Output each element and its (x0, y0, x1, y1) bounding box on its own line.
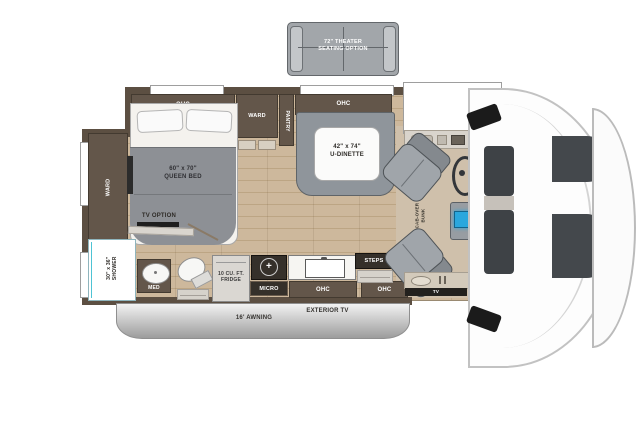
ohc-entry-label: OHC (362, 287, 407, 295)
wardrobe-top-label: WARD (237, 113, 277, 120)
ohc-dinette-label: OHC (296, 101, 391, 109)
tv-option-label: TV OPTION (130, 213, 188, 221)
dash-vent (451, 135, 465, 145)
fridge-label: 10 CU. FT. FRIDGE (213, 271, 249, 284)
kitchen-sink (305, 259, 345, 278)
bed-pillow (185, 109, 232, 133)
microwave: MICRO (250, 281, 288, 296)
windshield-upper (484, 146, 514, 196)
cab-tv-label: TV (405, 289, 467, 295)
wardrobe-left-label: WARD (106, 163, 113, 211)
med-cabinet-label: MED (138, 285, 170, 291)
cab-over-bunk-label: CAB-OVER BUNK (414, 194, 425, 238)
windshield-lower (484, 210, 514, 274)
wardrobe-tv-strip (127, 156, 133, 194)
sofa-armrest-right (383, 26, 396, 72)
cabinet-vent (439, 276, 441, 284)
queen-bed-label: 60" x 70" QUEEN BED (130, 166, 236, 181)
entry-step-tread (357, 270, 393, 283)
dinette-table: 42" x 74" U-DINETTE (314, 127, 380, 181)
theater-seating-sofa: 72" THEATER SEATING OPTION (287, 22, 399, 76)
front-bumper (592, 108, 636, 348)
bath-sink (142, 263, 170, 284)
refrigerator: 10 CU. FT. FRIDGE (212, 255, 250, 302)
ohc-kitchen-cabinet: OHC (289, 281, 357, 298)
stove: + (251, 255, 287, 280)
bed-pillow (136, 109, 183, 133)
cabinet-handle (411, 276, 431, 286)
pantry-label: PANTRY (284, 96, 290, 146)
bath-vanity-cabinet: MED (137, 259, 171, 293)
exterior-tv-label: EXTERIOR TV (275, 308, 380, 316)
dash-vent (437, 135, 447, 145)
wardrobe-top-cabinet: WARD (236, 94, 278, 138)
cab-tv-bar: TV (405, 288, 467, 296)
ohc-entry-cabinet: OHC (361, 281, 408, 298)
cab-roof-strip (484, 196, 514, 210)
dinette-label: 42" x 74" U-DINETTE (315, 144, 379, 159)
cab-rear-cabinet (404, 272, 470, 289)
shower-label: 30" x 36" SHOWER (106, 240, 119, 296)
toilet-step (177, 289, 209, 300)
awning-label: 16' AWNING (198, 315, 310, 323)
pantry-cabinet: PANTRY (279, 94, 294, 146)
microwave-label: MICRO (251, 286, 287, 293)
nightstand-drawer (238, 140, 256, 150)
nightstand-drawer (258, 140, 276, 150)
sink-drain (154, 271, 157, 274)
shower-stall: 30" x 36" SHOWER (88, 239, 136, 301)
rv-floorplan: 72" THEATER SEATING OPTION OHC WARD PANT… (0, 0, 640, 436)
kitchen-counter (288, 255, 356, 280)
theater-sofa-label: 72" THEATER SEATING OPTION (302, 39, 384, 53)
steering-hub (459, 170, 465, 176)
wardrobe-left-cabinet: WARD (88, 133, 128, 240)
stove-burner-icon: + (260, 258, 278, 276)
ohc-kitchen-label: OHC (290, 287, 356, 295)
kitchen-faucet (321, 257, 327, 260)
cabinet-vent (444, 276, 446, 284)
